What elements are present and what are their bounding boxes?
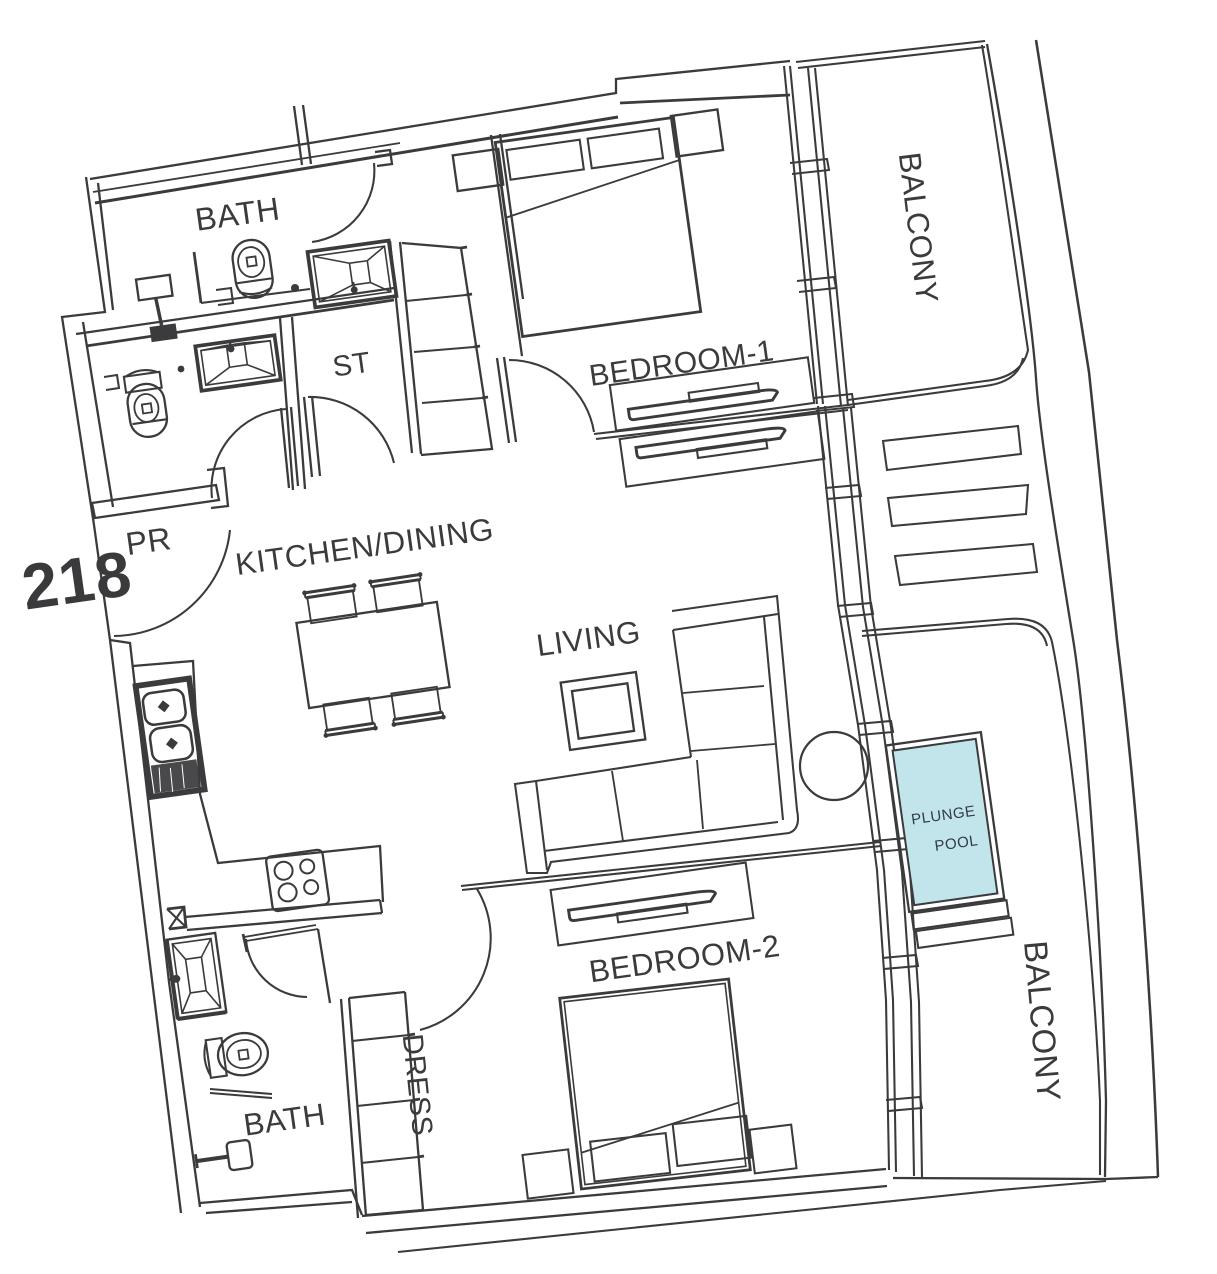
svg-text:218: 218 [18,537,137,624]
svg-text:PR: PR [123,520,173,562]
svg-text:ST: ST [331,347,373,384]
